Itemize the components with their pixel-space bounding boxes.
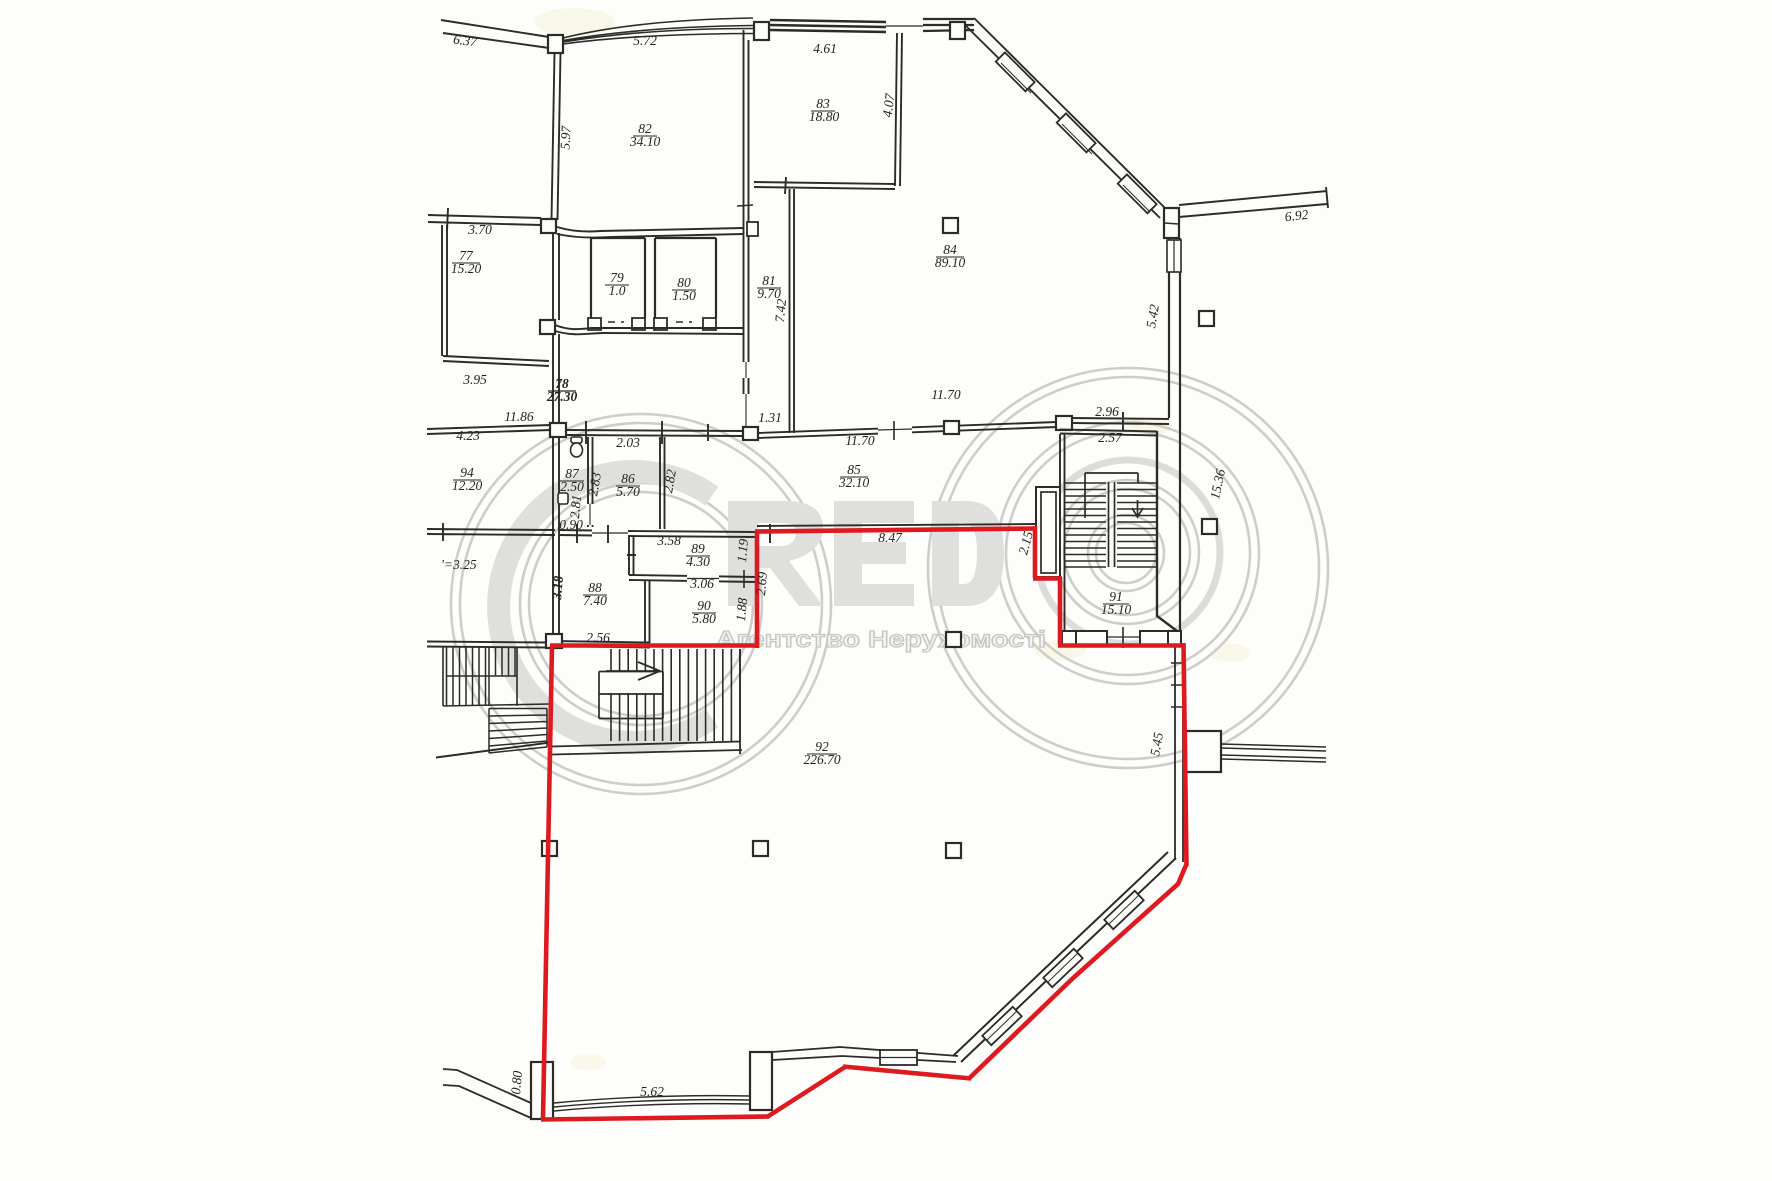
svg-text:1.88: 1.88: [733, 597, 750, 622]
svg-text:5.62: 5.62: [640, 1084, 664, 1099]
svg-text:4.30: 4.30: [686, 554, 710, 569]
svg-text:8.47: 8.47: [878, 530, 903, 545]
svg-text:3.06: 3.06: [689, 576, 714, 591]
svg-text:5.97: 5.97: [557, 124, 573, 150]
svg-text:4.61: 4.61: [813, 41, 837, 56]
svg-text:3.95: 3.95: [462, 372, 487, 387]
svg-text:27.30: 27.30: [546, 389, 578, 404]
svg-text:11.70: 11.70: [845, 433, 875, 448]
svg-text:1.31: 1.31: [758, 410, 782, 425]
svg-text:7.40: 7.40: [583, 593, 607, 608]
svg-text:1.0: 1.0: [609, 283, 626, 298]
svg-text:2.50: 2.50: [560, 479, 584, 494]
svg-text:4.07: 4.07: [880, 92, 898, 119]
svg-text:5.80: 5.80: [692, 611, 716, 626]
svg-text:5.72: 5.72: [633, 33, 657, 48]
svg-text:18.80: 18.80: [809, 109, 840, 124]
svg-text:15.10: 15.10: [1101, 602, 1132, 617]
svg-text:89.10: 89.10: [935, 255, 966, 270]
svg-text:32.10: 32.10: [838, 475, 870, 490]
svg-text:2.56: 2.56: [586, 630, 610, 645]
svg-text:2.69: 2.69: [753, 571, 770, 596]
svg-text:3.58: 3.58: [656, 533, 681, 548]
svg-text:226.70: 226.70: [803, 752, 840, 767]
svg-text:11.70: 11.70: [931, 387, 961, 402]
svg-text:15.20: 15.20: [451, 261, 482, 276]
svg-text:'=3.25: '=3.25: [441, 557, 477, 572]
svg-text:5.70: 5.70: [616, 484, 640, 499]
svg-text:0.90: 0.90: [559, 517, 583, 532]
svg-text:2.96: 2.96: [1095, 404, 1119, 419]
svg-text:1.50: 1.50: [672, 288, 696, 303]
svg-text:11.86: 11.86: [504, 409, 534, 424]
svg-text:3.18: 3.18: [549, 575, 566, 601]
svg-text:2.81: 2.81: [567, 494, 584, 519]
svg-text:7.42: 7.42: [772, 298, 789, 323]
svg-text:4.23: 4.23: [456, 428, 480, 443]
svg-text:12.20: 12.20: [452, 478, 483, 493]
svg-text:34.10: 34.10: [629, 134, 661, 149]
svg-text:3.70: 3.70: [467, 222, 492, 237]
svg-text:1.19: 1.19: [734, 538, 751, 563]
svg-text:2.03: 2.03: [616, 435, 640, 450]
svg-text:2.57: 2.57: [1098, 430, 1123, 445]
svg-text:6.92: 6.92: [1284, 207, 1309, 224]
svg-text:Агентство Нерухомості: Агентство Нерухомості: [716, 626, 1046, 652]
svg-text:0.80: 0.80: [508, 1070, 525, 1095]
